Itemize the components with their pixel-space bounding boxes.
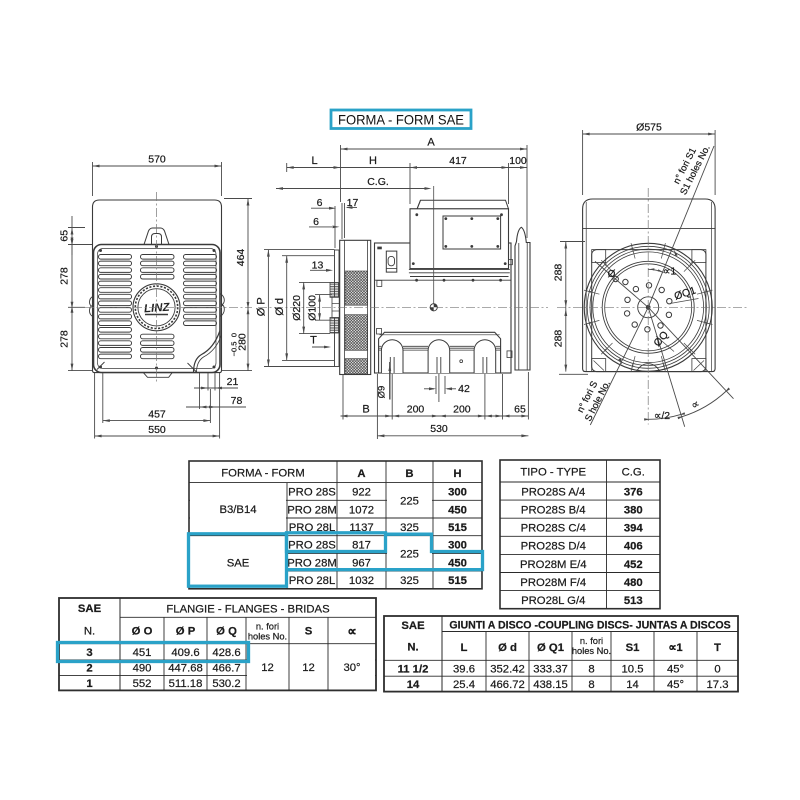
svg-text:1072: 1072 (349, 504, 374, 516)
svg-text:450: 450 (448, 504, 467, 516)
svg-text:333.37: 333.37 (533, 663, 568, 675)
svg-text:406: 406 (624, 541, 643, 553)
svg-text:490: 490 (133, 663, 152, 675)
svg-text:225: 225 (400, 548, 419, 560)
svg-text:B: B (405, 468, 413, 480)
svg-text:45°: 45° (667, 663, 684, 675)
svg-text:466.72: 466.72 (490, 679, 525, 691)
svg-text:T: T (310, 334, 317, 346)
svg-text:530.2: 530.2 (212, 678, 240, 690)
svg-text:39.6: 39.6 (453, 663, 475, 675)
svg-text:T: T (714, 642, 721, 654)
svg-text:Ø: Ø (608, 269, 616, 280)
svg-text:H: H (453, 468, 461, 480)
svg-text:PRO28L G/4: PRO28L G/4 (521, 595, 585, 607)
svg-text:PRO28S B/4: PRO28S B/4 (521, 505, 586, 517)
svg-text:550: 550 (148, 424, 166, 436)
svg-text:Ø Q: Ø Q (216, 626, 237, 638)
svg-text:78: 78 (231, 395, 243, 407)
svg-text:380: 380 (624, 505, 643, 517)
svg-text:417: 417 (449, 155, 467, 167)
svg-text:LINZ: LINZ (144, 302, 171, 316)
svg-text:288: 288 (553, 264, 565, 282)
svg-text:100: 100 (509, 155, 527, 167)
svg-text:457: 457 (148, 409, 166, 421)
svg-text:225: 225 (400, 495, 419, 507)
svg-text:1: 1 (86, 678, 92, 690)
svg-text:552: 552 (133, 678, 152, 690)
svg-text:967: 967 (352, 557, 371, 569)
svg-text:42: 42 (458, 383, 470, 395)
svg-text:450: 450 (448, 557, 467, 569)
svg-text:45°: 45° (667, 679, 684, 691)
svg-text:451: 451 (133, 647, 152, 659)
svg-text:530: 530 (430, 423, 448, 435)
svg-text:B: B (362, 403, 369, 415)
svg-text:Ø220: Ø220 (291, 295, 303, 321)
svg-text:PRO28M F/4: PRO28M F/4 (520, 577, 586, 589)
svg-text:Ø d: Ø d (498, 642, 517, 654)
svg-text:∝/2: ∝/2 (654, 410, 670, 422)
svg-text:SAE: SAE (78, 603, 102, 615)
svg-text:holes No.: holes No. (248, 632, 287, 642)
svg-text:515: 515 (448, 522, 467, 534)
svg-text:Ø d: Ø d (274, 298, 286, 316)
svg-text:∝1: ∝1 (668, 642, 682, 654)
svg-text:Ø P: Ø P (176, 626, 196, 638)
svg-text:25.4: 25.4 (453, 679, 475, 691)
svg-text:A: A (427, 137, 435, 149)
svg-text:∝1: ∝1 (663, 266, 677, 278)
svg-text:200: 200 (407, 403, 425, 415)
svg-text:376: 376 (624, 486, 643, 498)
svg-text:C.G.: C.G. (622, 466, 645, 478)
svg-text:n. fori: n. fori (256, 622, 279, 632)
svg-text:2: 2 (86, 663, 92, 675)
svg-text:A: A (357, 468, 365, 480)
svg-text:394: 394 (624, 523, 644, 535)
svg-text:13: 13 (312, 259, 324, 271)
svg-text:−0.5: −0.5 (230, 342, 239, 357)
svg-text:PRO 28L: PRO 28L (289, 575, 335, 587)
svg-text:L: L (461, 642, 468, 654)
svg-text:6: 6 (313, 216, 319, 228)
svg-text:14: 14 (407, 679, 420, 691)
svg-text:0: 0 (230, 333, 239, 337)
svg-text:Ø9: Ø9 (377, 386, 388, 399)
svg-text:Ø Q1: Ø Q1 (537, 642, 564, 654)
svg-text:H: H (369, 155, 377, 167)
svg-text:1032: 1032 (349, 575, 374, 587)
svg-text:428.6: 428.6 (212, 647, 240, 659)
svg-text:S: S (305, 626, 313, 638)
svg-text:513: 513 (624, 595, 643, 607)
svg-text:PRO28S C/4: PRO28S C/4 (521, 523, 586, 535)
svg-text:∝: ∝ (347, 624, 356, 639)
svg-text:0: 0 (714, 663, 720, 675)
svg-text:B3/B14: B3/B14 (219, 504, 256, 516)
svg-text:17.3: 17.3 (707, 679, 729, 691)
svg-text:10.5: 10.5 (622, 663, 644, 675)
svg-text:PRO28S D/4: PRO28S D/4 (521, 541, 586, 553)
svg-text:30°: 30° (343, 662, 360, 674)
svg-text:GIUNTI A DISCO -COUPLING DISCS: GIUNTI A DISCO -COUPLING DISCS- JUNTAS A… (449, 620, 730, 632)
svg-text:PRO 28M: PRO 28M (287, 557, 337, 569)
svg-text:11 1/2: 11 1/2 (398, 663, 429, 675)
svg-text:holes No.: holes No. (572, 646, 611, 656)
svg-text:C.G.: C.G. (367, 176, 389, 188)
svg-text:325: 325 (400, 522, 419, 534)
svg-text:65: 65 (59, 230, 71, 242)
svg-text:14: 14 (626, 679, 639, 691)
svg-text:17: 17 (347, 197, 359, 209)
svg-text:12: 12 (302, 662, 315, 674)
svg-text:464: 464 (235, 249, 247, 267)
svg-text:N.: N. (84, 625, 95, 637)
svg-text:922: 922 (352, 487, 371, 499)
svg-text:515: 515 (448, 575, 467, 587)
svg-text:3: 3 (86, 647, 92, 659)
svg-text:352.42: 352.42 (490, 663, 525, 675)
svg-text:FORMA - FORM: FORMA - FORM (221, 467, 304, 479)
svg-text:480: 480 (624, 577, 643, 589)
svg-text:n. fori: n. fori (580, 636, 603, 646)
svg-text:TIPO - TYPE: TIPO - TYPE (520, 466, 586, 478)
svg-text:570: 570 (148, 154, 166, 166)
svg-text:21: 21 (227, 376, 239, 388)
svg-text:466.7: 466.7 (212, 663, 240, 675)
svg-text:FLANGIE - FLANGES - BRIDAS: FLANGIE - FLANGES - BRIDAS (166, 603, 330, 615)
svg-text:447.68: 447.68 (168, 663, 203, 675)
svg-text:511.18: 511.18 (169, 678, 203, 690)
svg-text:PRO28M E/4: PRO28M E/4 (520, 559, 587, 571)
svg-text:Ø P: Ø P (256, 297, 268, 316)
svg-text:278: 278 (59, 267, 71, 285)
svg-text:325: 325 (400, 575, 419, 587)
svg-text:65: 65 (514, 403, 526, 415)
svg-text:FORMA - FORM SAE: FORMA - FORM SAE (338, 112, 464, 127)
svg-text:300: 300 (448, 487, 467, 499)
svg-text:288: 288 (553, 330, 565, 348)
svg-text:PRO28S A/4: PRO28S A/4 (521, 486, 585, 498)
svg-text:PRO 28M: PRO 28M (287, 504, 337, 516)
svg-text:8: 8 (588, 663, 594, 675)
svg-text:6: 6 (317, 197, 323, 209)
svg-text:S1: S1 (626, 642, 640, 654)
svg-text:Ø575: Ø575 (636, 122, 662, 134)
svg-text:L: L (311, 155, 317, 167)
svg-text:278: 278 (59, 330, 71, 348)
svg-text:12: 12 (261, 662, 274, 674)
svg-text:SAE: SAE (227, 557, 250, 569)
svg-text:PRO 28S: PRO 28S (288, 487, 336, 499)
svg-text:452: 452 (624, 559, 643, 571)
svg-text:409.6: 409.6 (171, 647, 199, 659)
svg-text:SAE: SAE (401, 620, 425, 632)
svg-text:Ø O: Ø O (132, 626, 153, 638)
svg-text:N.: N. (407, 642, 418, 654)
svg-text:438.15: 438.15 (533, 679, 568, 691)
svg-text:Ø100: Ø100 (307, 295, 319, 321)
svg-text:8: 8 (588, 679, 594, 691)
svg-text:200: 200 (453, 403, 471, 415)
